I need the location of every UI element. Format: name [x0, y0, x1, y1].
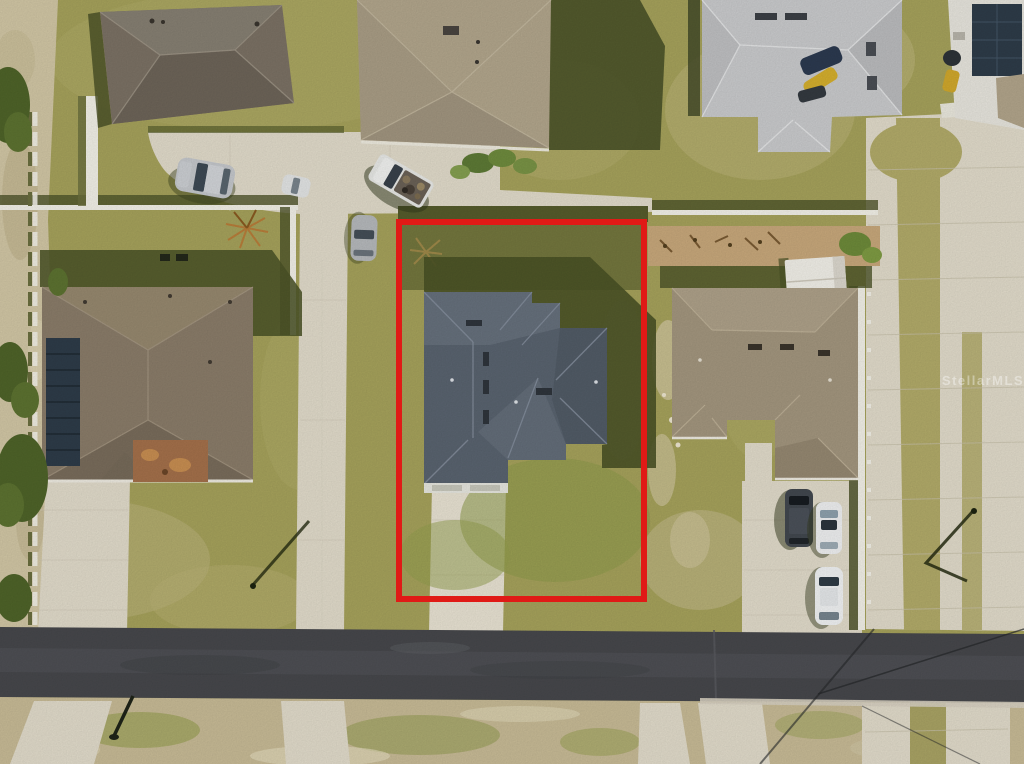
mls-watermark: StellarMLS	[942, 373, 1024, 388]
aerial-property-photo: StellarMLS	[0, 0, 1024, 764]
photo-grain	[0, 0, 1024, 764]
